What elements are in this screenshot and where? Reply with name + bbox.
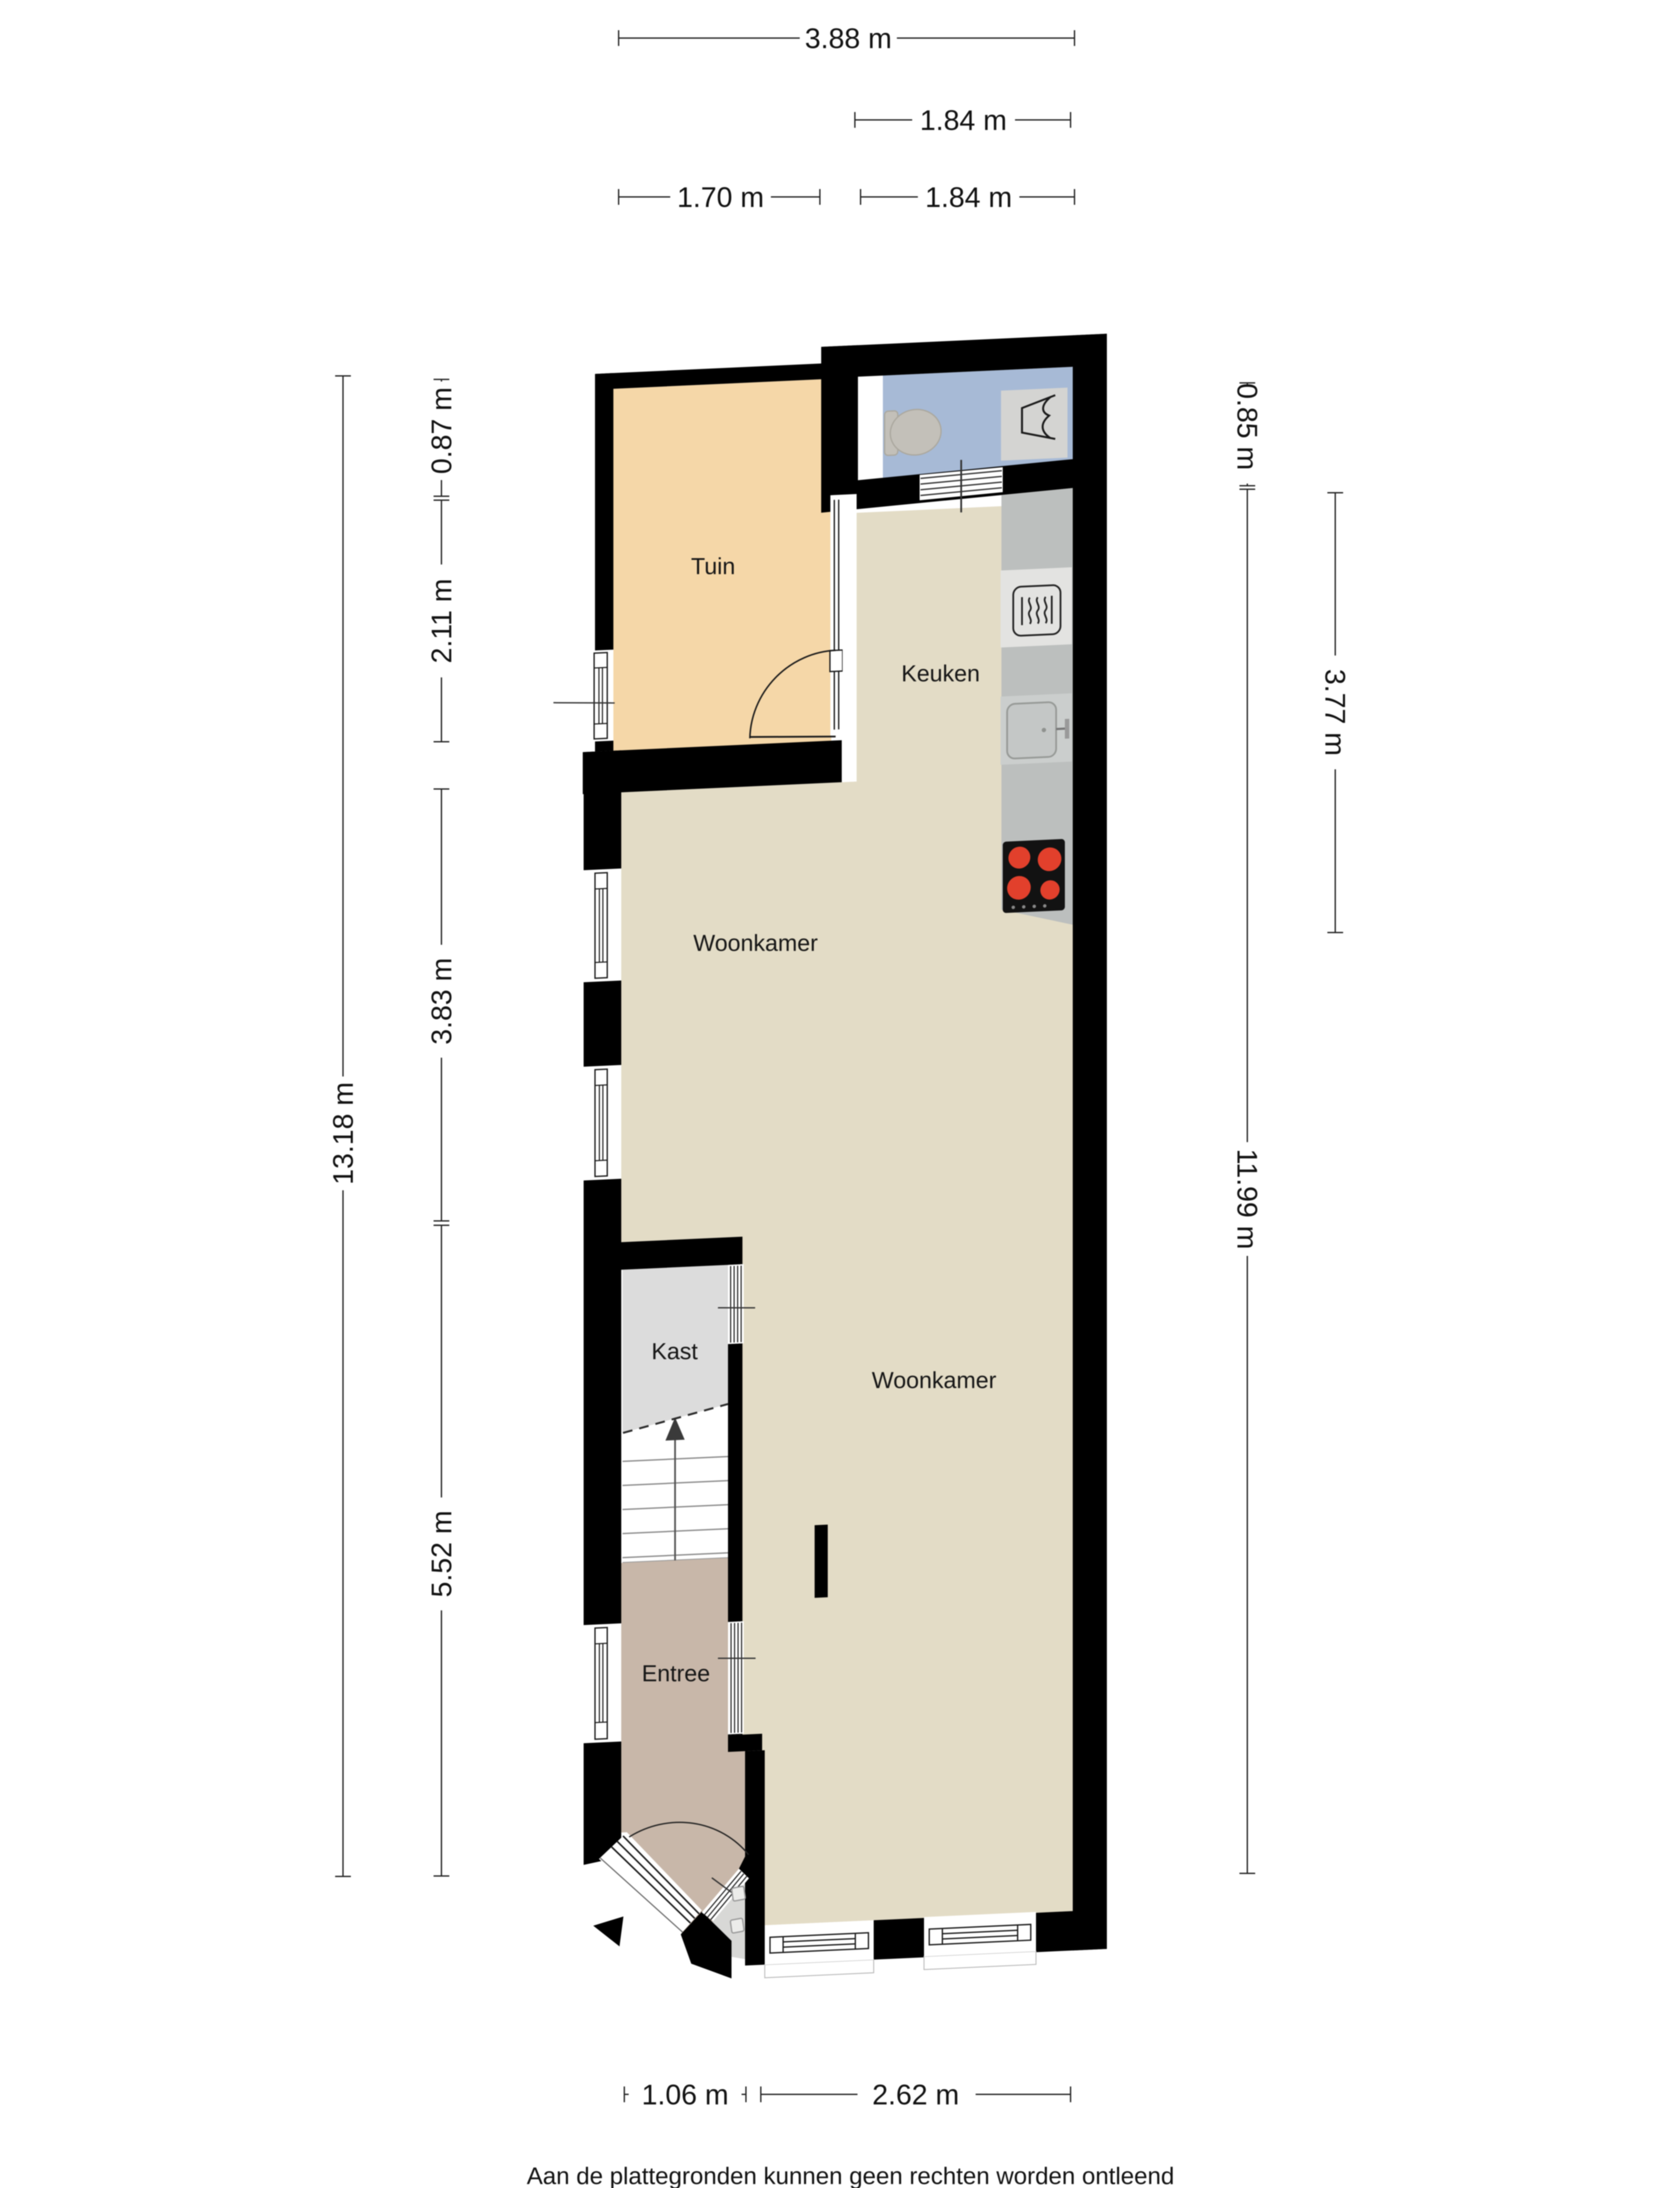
svg-text:3.88 m: 3.88 m <box>805 22 892 54</box>
svg-text:Tuin: Tuin <box>691 554 735 579</box>
svg-text:1.06 m: 1.06 m <box>642 2079 729 2111</box>
svg-text:3.83 m: 3.83 m <box>426 958 458 1045</box>
svg-text:Woonkamer: Woonkamer <box>872 1367 997 1393</box>
svg-text:11.99 m: 11.99 m <box>1232 1149 1263 1249</box>
svg-text:1.84 m: 1.84 m <box>920 104 1007 136</box>
svg-text:0.87 m: 0.87 m <box>426 387 458 474</box>
svg-text:Aan de plattegronden kunnen ge: Aan de plattegronden kunnen geen rechten… <box>527 2162 1174 2188</box>
svg-text:5.52 m: 5.52 m <box>426 1511 458 1598</box>
svg-text:3.77 m: 3.77 m <box>1319 669 1351 756</box>
svg-text:1.70 m: 1.70 m <box>677 181 764 213</box>
svg-text:0.85 m: 0.85 m <box>1232 383 1263 470</box>
svg-text:13.18 m: 13.18 m <box>327 1082 359 1185</box>
svg-text:Entree: Entree <box>642 1661 710 1687</box>
svg-text:Kast: Kast <box>651 1339 698 1364</box>
svg-text:1.84 m: 1.84 m <box>925 181 1012 213</box>
svg-text:2.11 m: 2.11 m <box>426 579 458 663</box>
svg-text:Woonkamer: Woonkamer <box>693 930 818 956</box>
svg-text:2.62 m: 2.62 m <box>872 2079 959 2111</box>
svg-text:Keuken: Keuken <box>901 661 980 687</box>
